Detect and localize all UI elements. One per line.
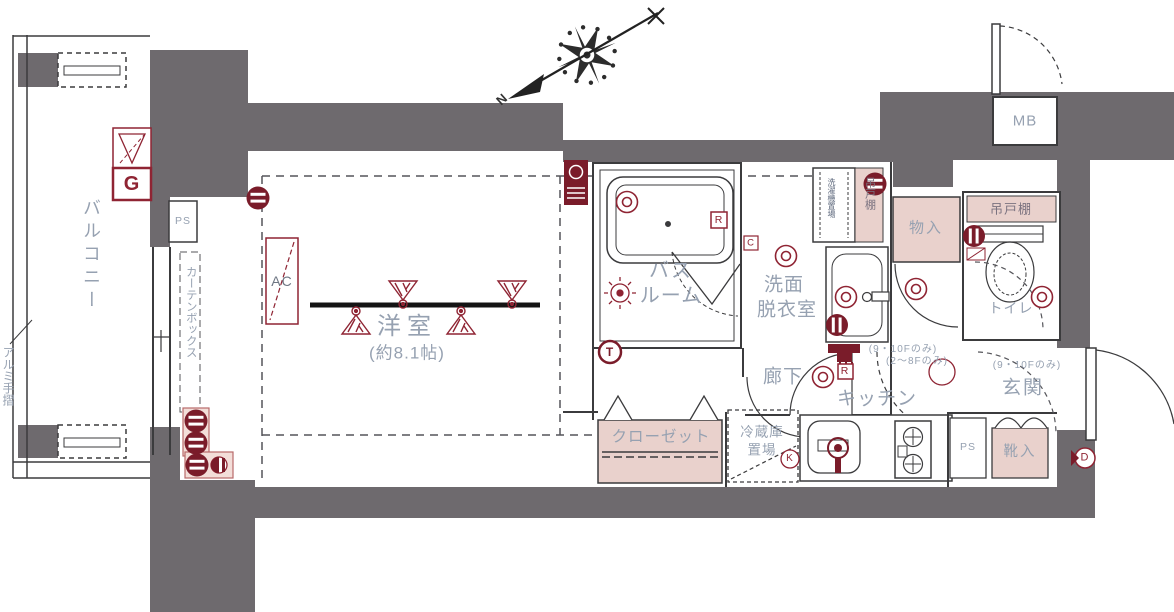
living-room-size: (約8.1帖) xyxy=(369,345,445,362)
pipe-space-kitchen-label: PS xyxy=(960,442,976,453)
ac-label: AC xyxy=(271,274,292,288)
washroom-label-1: 洗面 xyxy=(764,276,804,295)
bathroom-label-2: ルーム xyxy=(640,286,702,306)
entrance-label: 玄関 xyxy=(1002,379,1044,398)
balcony-window xyxy=(153,247,170,455)
k-mark-label: K xyxy=(786,454,794,464)
toilet-label: トイレ xyxy=(989,301,1034,315)
hall-remote-label: R xyxy=(841,366,850,377)
washroom-label-2: 脱衣室 xyxy=(757,301,817,320)
doorbell-label: D xyxy=(1081,453,1090,464)
laundry-space-label: 洗濯機置場 xyxy=(827,178,835,218)
compass-rose xyxy=(508,8,664,99)
pipe-space-top-label: PS xyxy=(175,216,191,227)
bathroom-label-1: バス xyxy=(649,261,693,281)
kitchen-label: キッチン xyxy=(837,390,917,409)
floor-plan: バルコニー アルミ手摺 カーテンボックス G PS AC 洋室 (約8.1帖) … xyxy=(0,0,1174,612)
c-mark-label: C xyxy=(747,238,755,248)
shoe-box-label: 靴入 xyxy=(1004,445,1037,460)
closet-linework xyxy=(563,348,722,483)
storage-box xyxy=(893,197,960,327)
toilet-cupboard-label: 吊戸棚 xyxy=(990,203,1032,216)
fridge-label-2: 置場 xyxy=(748,443,777,457)
fridge-label-1: 冷蔵庫 xyxy=(740,425,784,439)
meter-box-label: MB xyxy=(1013,114,1038,129)
bath-remote-label: R xyxy=(715,215,724,226)
bathroom-linework xyxy=(593,163,741,348)
storage-label: 物入 xyxy=(909,221,943,236)
closet-label: クローゼット xyxy=(611,429,710,445)
living-room-label: 洋室 xyxy=(377,315,437,339)
balcony-linework xyxy=(10,35,150,478)
outlet-cluster xyxy=(183,408,233,478)
gas-meter-label: G xyxy=(124,174,141,194)
entrance-note: (9・10Fのみ) xyxy=(993,361,1061,371)
water-heater-panel xyxy=(564,160,588,205)
vent-symbol xyxy=(247,187,270,210)
balcony-label: バルコニー xyxy=(82,198,100,313)
hallway-label: 廊下 xyxy=(763,368,803,387)
t-mark-label: T xyxy=(606,346,614,358)
washroom-cupboard-label: 吊戸棚 xyxy=(864,177,875,210)
curtain-box-label: カーテンボックス xyxy=(184,266,196,358)
handrail-label: アルミ手摺 xyxy=(2,346,14,406)
hall-note-9-10f: (9・10Fのみ) xyxy=(869,345,937,355)
hall-note-2-8f: (2〜8Fのみ) xyxy=(886,357,948,367)
